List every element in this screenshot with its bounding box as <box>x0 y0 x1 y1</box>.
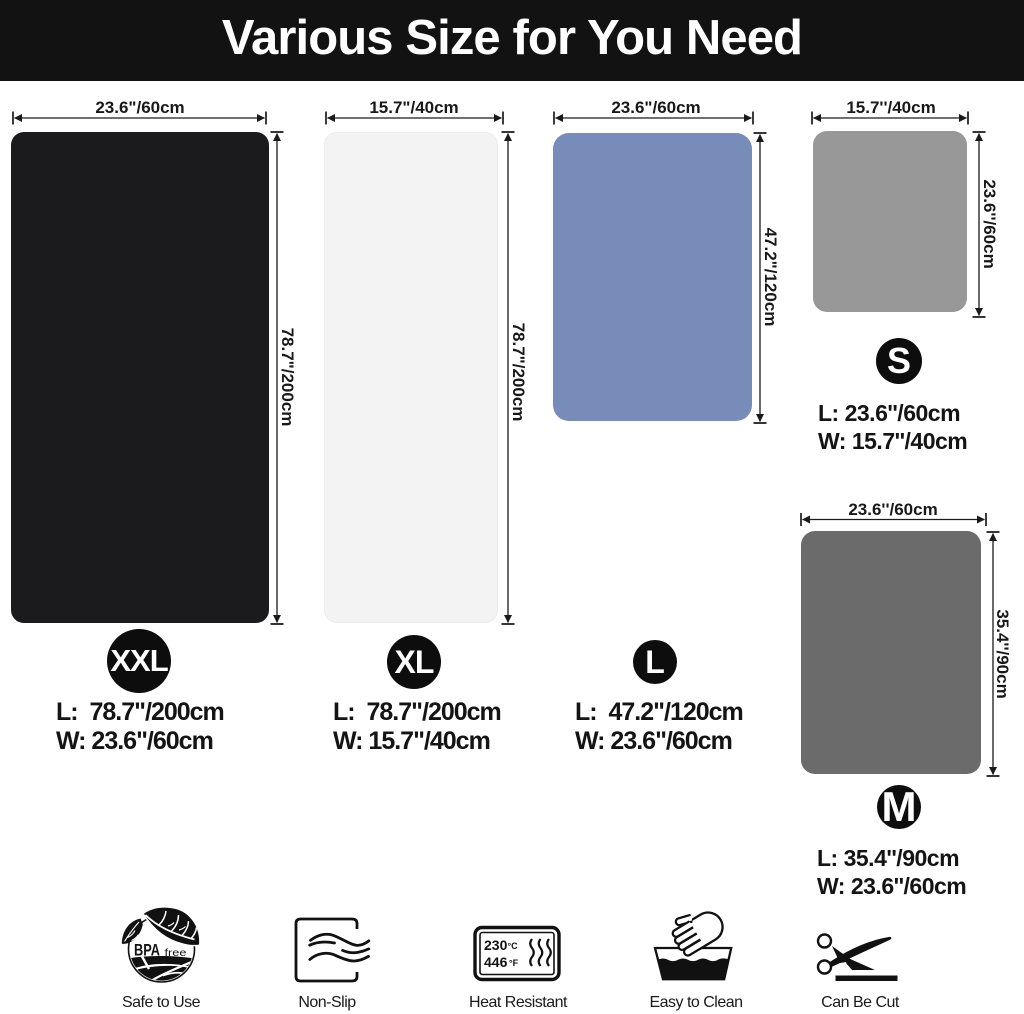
svg-text:230: 230 <box>484 937 508 953</box>
svg-text:°F: °F <box>509 958 519 968</box>
svg-text:°C: °C <box>508 941 519 951</box>
svg-text:446: 446 <box>484 954 508 970</box>
